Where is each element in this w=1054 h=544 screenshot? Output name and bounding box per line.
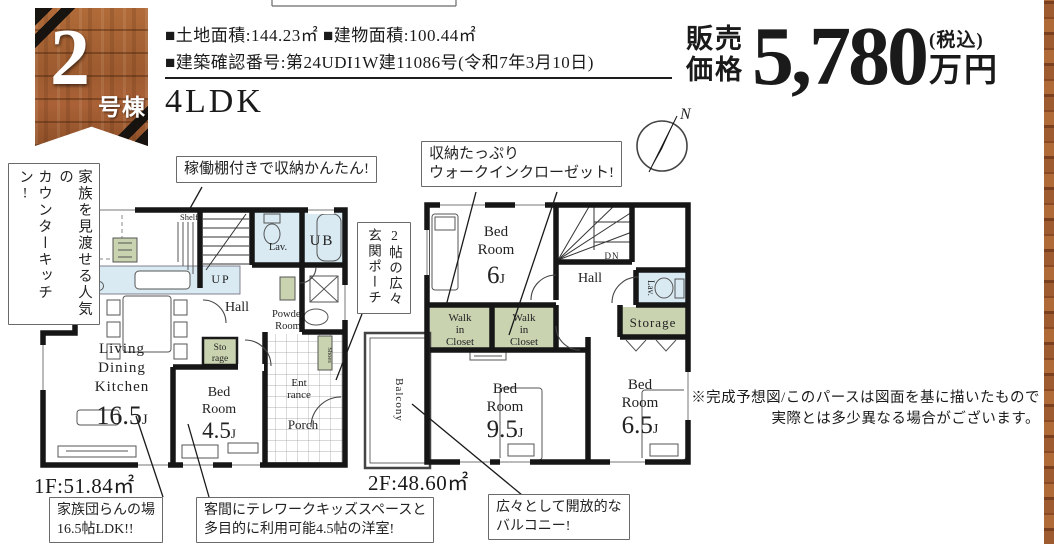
callout-shelf: 稼働棚付きで収納かんたん! <box>176 156 377 183</box>
unit-badge: 2 号棟 <box>35 8 148 146</box>
floor1-area-label: 1F:51.84㎡ <box>34 470 135 500</box>
compass-north-label: N <box>679 106 692 123</box>
top-partial-box <box>272 0 456 6</box>
callout-balcony: 広々として開放的な バルコニー! <box>488 494 630 540</box>
label-bed65-size: 6.5J <box>622 412 659 439</box>
label-bed6-size: 6J <box>487 262 506 289</box>
unit-suffix: 号棟 <box>98 88 146 122</box>
label-bed45-1: Bed <box>208 385 231 400</box>
price-tax-note: (税込) <box>929 30 999 52</box>
closet-door-marks <box>626 340 676 351</box>
stairs-1f <box>203 214 249 270</box>
label-wic2-3: Closet <box>510 336 538 348</box>
callout-entrance-porch: 2帖の広々 玄関ポーチ <box>357 222 411 314</box>
price-label: 販売 価格 <box>686 24 744 86</box>
spec-line-areas: ■土地面積:144.23㎡ ■建物面積:100.44㎡ <box>165 22 594 49</box>
callout-counter-kitchen: 家族を見渡せる人気の カウンターキッチン! <box>8 163 100 325</box>
label-wic1-1: Walk <box>449 312 472 324</box>
label-ldk-2: Dining <box>98 360 146 376</box>
label-storage1f-2: rage <box>212 354 228 364</box>
wood-texture-strip <box>1044 0 1054 544</box>
label-bed95-1: Bed <box>493 381 518 397</box>
property-specs: ■土地面積:144.23㎡ ■建物面積:100.44㎡ ■建築確認番号:第24U… <box>165 22 594 76</box>
label-bed6-2: Room <box>478 242 515 258</box>
header-divider <box>165 77 672 79</box>
label-bed65-2: Room <box>622 395 659 411</box>
price-block: 販売 価格 5,780 (税込) 万円 <box>686 14 999 100</box>
label-ldk-1: Living <box>99 341 145 357</box>
callout-wic: 収納たっぷり ウォークインクローゼット! <box>421 141 622 187</box>
label-dn: DN <box>605 251 620 261</box>
label-bed95-2: Room <box>487 399 524 415</box>
label-ldk-size: 16.5J <box>96 401 148 430</box>
layout-type: 4LDK <box>165 83 264 121</box>
label-wic1-3: Closet <box>446 336 474 348</box>
label-up: UP <box>211 272 230 286</box>
label-powder-2: Room <box>275 321 301 332</box>
room-lav-1f <box>254 212 300 265</box>
label-powder-1: Powder <box>272 309 305 320</box>
label-entrance-2: rance <box>287 389 311 401</box>
label-ub: UB <box>310 233 335 249</box>
price-unit-block: (税込) 万円 <box>929 30 999 90</box>
label-wic1-2: in <box>456 324 465 336</box>
callout-ldk: 家族団らんの場 16.5帖LDK!! <box>49 497 163 543</box>
unit-number: 2 <box>50 18 90 98</box>
label-shoes: Shoes <box>326 347 333 363</box>
label-storage1f-1: Sto <box>214 343 227 353</box>
disclaimer: ※完成予想図/このパースは図面を基に描いたもので 実際とは多少異なる場合がござい… <box>691 388 1040 430</box>
label-hall-1f: Hall <box>225 300 249 315</box>
room-lav-2f <box>638 272 686 304</box>
label-storage-2f: Storage <box>630 315 677 330</box>
label-hall-2f: Hall <box>578 271 602 286</box>
stairs-2f <box>558 205 632 260</box>
label-bed45-2: Room <box>202 402 236 417</box>
label-entrance-1: Ent <box>291 377 306 389</box>
label-balcony: Balcony <box>393 378 405 422</box>
label-ldk-3: Kitchen <box>95 379 149 395</box>
price-amount: 5,780 <box>752 14 926 100</box>
label-bed95-size: 9.5J <box>487 416 524 443</box>
label-porch: Porch <box>288 417 319 432</box>
label-bed45-size: 4.5J <box>202 418 236 443</box>
flyer-page: R Shelf UP Lav. UB Powder Room Hall Sto … <box>0 0 1054 544</box>
label-shelf: Shelf <box>180 212 198 222</box>
price-unit: 万円 <box>929 52 999 90</box>
label-wic2-2: in <box>520 324 529 336</box>
label-bed65-1: Bed <box>628 377 653 393</box>
callout-guest-room: 客間にテレワークキッズスペースと 多目的に利用可能4.5帖の洋室! <box>196 497 434 543</box>
floor2-area-label: 2F:48.60㎡ <box>368 467 469 497</box>
compass-icon: N <box>637 106 692 172</box>
floor-2f: Bed Room 6J DN Hall Lav. Storage Walk in… <box>365 201 692 468</box>
spec-line-permit: ■建築確認番号:第24UDI1W建11086号(令和7年3月10日) <box>165 49 594 76</box>
label-lav-2f: Lav. <box>646 280 656 296</box>
label-bed6-1: Bed <box>484 224 509 240</box>
label-lav-1f: Lav. <box>269 242 287 253</box>
